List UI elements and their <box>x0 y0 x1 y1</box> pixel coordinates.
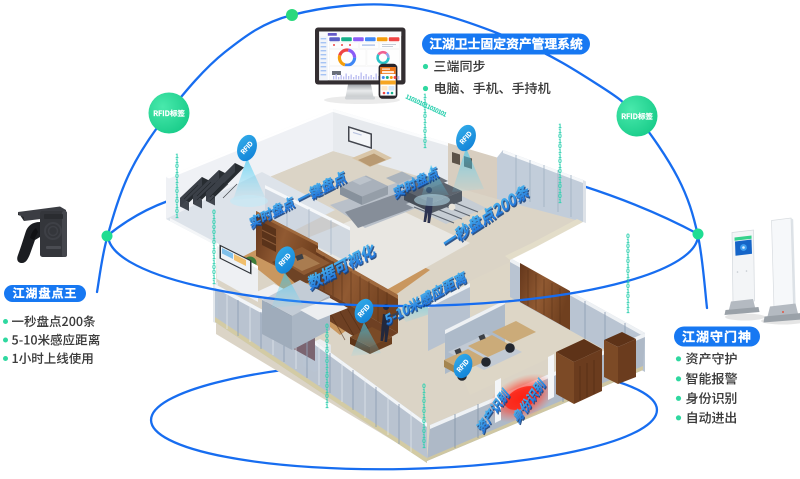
svg-text:RFID标签: RFID标签 <box>621 111 653 122</box>
svg-text:智能报警: 智能报警 <box>686 368 738 387</box>
svg-text:自动进出: 自动进出 <box>686 407 738 426</box>
svg-text:0100101011010111: 0100101011010111 <box>624 232 633 314</box>
svg-text:江湖守门神: 江湖守门神 <box>682 326 752 345</box>
svg-text:江湖盘点王: 江湖盘点王 <box>12 285 77 302</box>
svg-text:1101011010110101: 1101011010110101 <box>556 122 565 204</box>
svg-text:三端同步: 三端同步 <box>434 56 486 75</box>
svg-text:RFID标签: RFID标签 <box>153 108 185 119</box>
svg-text:0110101010101: 0110101010101 <box>420 382 429 449</box>
svg-text:1101011010101: 1101011010101 <box>173 152 182 219</box>
svg-text:电脑、手机、手持机: 电脑、手机、手持机 <box>434 78 551 97</box>
svg-text:身份识别: 身份识别 <box>686 388 738 407</box>
svg-text:01001010110101011: 01001010110101011 <box>323 322 332 409</box>
svg-text:5-10米感应距离: 5-10米感应距离 <box>12 329 101 348</box>
svg-text:江湖卫士固定资产管理系统: 江湖卫士固定资产管理系统 <box>429 34 583 53</box>
svg-text:1小时上线使用: 1小时上线使用 <box>12 348 94 367</box>
svg-text:资产守护: 资产守护 <box>686 348 738 367</box>
svg-text:010001010110011: 010001010110011 <box>210 208 219 285</box>
svg-text:一秒盘点200条: 一秒盘点200条 <box>12 311 97 330</box>
